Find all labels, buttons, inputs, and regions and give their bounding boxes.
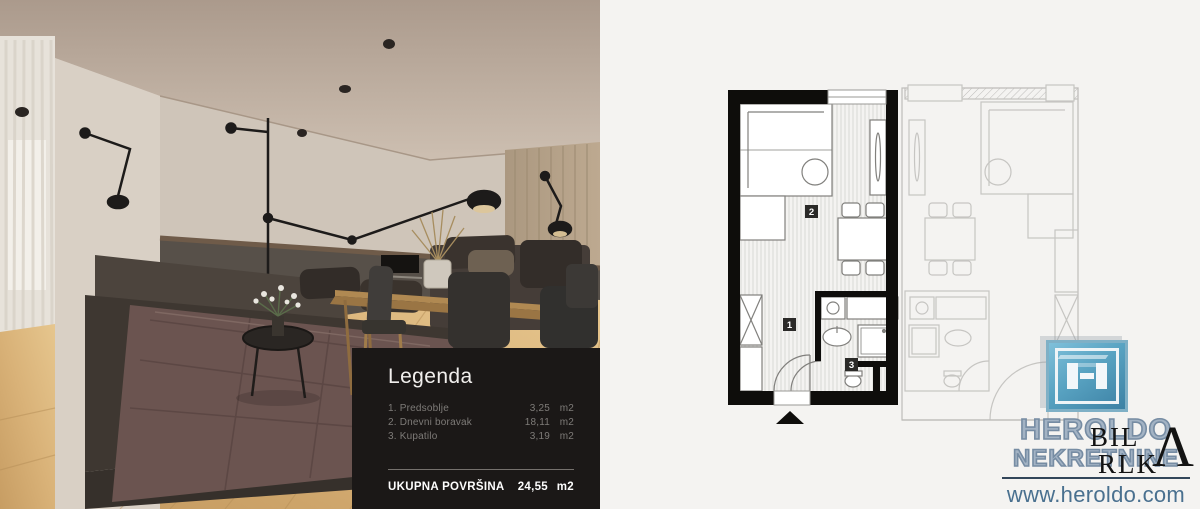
room-label: 3. Kupatilo xyxy=(388,430,514,444)
floor-left-nook xyxy=(0,324,55,509)
brand-url[interactable]: www.heroldo.com xyxy=(998,482,1194,508)
room-unit: m2 xyxy=(550,416,574,430)
legend-divider xyxy=(388,469,574,470)
room-area: 3,19 xyxy=(514,430,550,444)
legend-row-2: 2. Dnevni boravak 18,11 m2 xyxy=(388,416,574,430)
room-unit: m2 xyxy=(550,402,574,416)
total-unit: m2 xyxy=(548,481,574,493)
plan-entrance-threshold xyxy=(774,391,810,405)
agency-watermark: BIL RLK Λ xyxy=(1090,424,1200,478)
plan-toilet xyxy=(845,375,861,387)
svg-text:2: 2 xyxy=(809,207,814,218)
heroldo-logo-icon xyxy=(1046,340,1128,412)
legend-row-1: 1. Predsoblje 3,25 m2 xyxy=(388,402,574,416)
brand-block: HEROLDO NEKRETNINE BIL RLK Λ www.heroldo… xyxy=(998,336,1194,508)
total-value: 24,55 xyxy=(508,481,548,493)
watermark-accent: Λ xyxy=(1152,418,1194,476)
legend-title: Legenda xyxy=(388,365,574,389)
legend-row-3: 3. Kupatilo 3,19 m2 xyxy=(388,430,574,444)
room-area: 18,11 xyxy=(514,416,550,430)
listing-composite: Legenda 1. Predsoblje 3,25 m2 2. Dnevni … xyxy=(0,0,1200,509)
legend-panel: Legenda 1. Predsoblje 3,25 m2 2. Dnevni … xyxy=(352,348,600,509)
logo-h-glyph xyxy=(1067,363,1107,389)
plan-dining-table xyxy=(838,218,888,260)
room-label: 1. Predsoblje xyxy=(388,402,514,416)
main-unit: 1 2 3 xyxy=(728,90,898,424)
plan-entrance-arrow xyxy=(776,411,804,424)
room-label: 2. Dnevni boravak xyxy=(388,416,514,430)
plan-coffee-table xyxy=(802,159,828,185)
total-label: UKUPNA POVRŠINA xyxy=(388,481,508,493)
plan-window xyxy=(828,90,886,104)
svg-text:3: 3 xyxy=(849,360,854,371)
room-unit: m2 xyxy=(550,430,574,444)
logo-streak xyxy=(1058,355,1109,359)
room-area: 3,25 xyxy=(514,402,550,416)
svg-text:1: 1 xyxy=(787,320,793,331)
legend-total-row: UKUPNA POVRŠINA 24,55 m2 xyxy=(388,481,574,493)
